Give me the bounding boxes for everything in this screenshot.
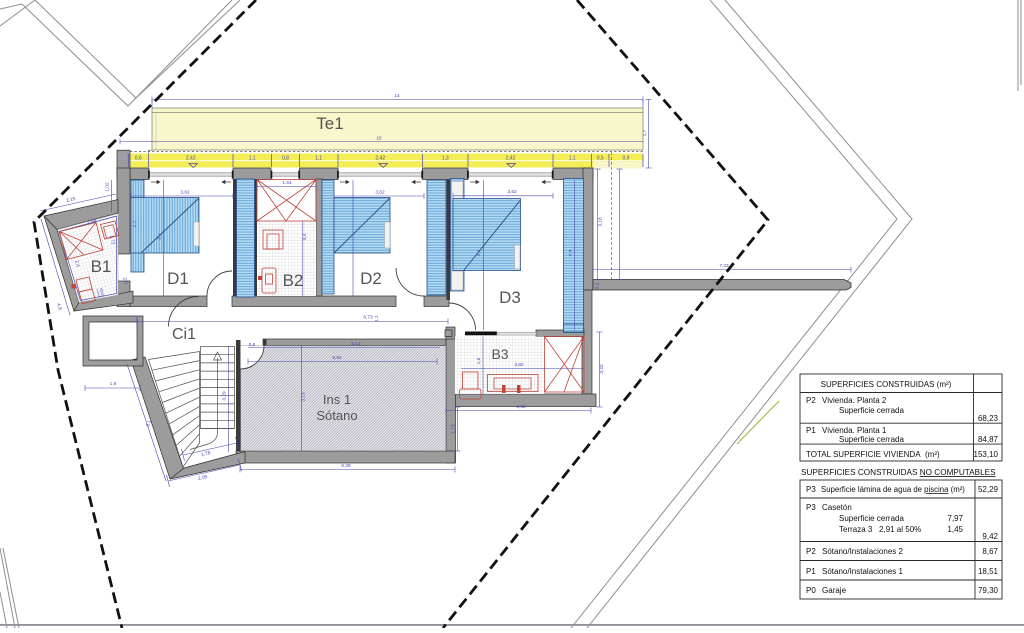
svg-text:5,92: 5,92 [332, 355, 342, 361]
svg-text:P2: P2 [806, 396, 816, 405]
svg-text:8,73: 8,73 [363, 315, 373, 321]
svg-text:14: 14 [394, 93, 400, 99]
svg-text:1,61: 1,61 [282, 180, 292, 186]
svg-text:B3: B3 [491, 346, 508, 362]
svg-text:2,7: 2,7 [132, 220, 138, 227]
svg-text:3,13: 3,13 [301, 392, 307, 402]
svg-text:2,42: 2,42 [375, 156, 385, 162]
svg-text:P1: P1 [806, 426, 816, 435]
svg-text:B2: B2 [283, 271, 304, 290]
svg-text:D3: D3 [499, 288, 521, 307]
svg-text:18,51: 18,51 [978, 567, 999, 576]
svg-text:1,6: 1,6 [476, 357, 482, 364]
svg-text:3,62: 3,62 [507, 189, 517, 195]
svg-text:1,45: 1,45 [947, 525, 963, 534]
svg-text:Superficie cerrada: Superficie cerrada [839, 435, 904, 444]
svg-text:Superficie cerrada: Superficie cerrada [839, 514, 904, 523]
svg-text:Sótano/Instalaciones 1: Sótano/Instalaciones 1 [822, 567, 903, 576]
svg-text:Terraza 3 2,91 al 50%: Terraza 3 2,91 al 50% [839, 525, 921, 534]
svg-text:1,1: 1,1 [374, 315, 380, 322]
svg-text:3,62: 3,62 [514, 362, 524, 368]
svg-text:Sótano: Sótano [316, 408, 357, 423]
svg-text:P1: P1 [806, 567, 816, 576]
svg-text:0,6: 0,6 [135, 156, 142, 162]
svg-text:Vivienda. Planta 1: Vivienda. Planta 1 [822, 426, 887, 435]
svg-text:2,42: 2,42 [186, 156, 196, 162]
svg-text:52,29: 52,29 [978, 485, 999, 494]
svg-text:5,12: 5,12 [351, 341, 361, 347]
svg-text:Casetón: Casetón [822, 503, 852, 512]
svg-text:3,22: 3,22 [599, 364, 605, 374]
svg-text:Ci1: Ci1 [172, 326, 196, 343]
svg-text:4,4: 4,4 [568, 249, 574, 256]
svg-text:0,9: 0,9 [623, 156, 630, 162]
svg-text:P3: P3 [806, 503, 816, 512]
svg-text:79,30: 79,30 [978, 586, 999, 595]
svg-text:Sótano/Instalaciones 2: Sótano/Instalaciones 2 [822, 547, 903, 556]
svg-text:153,10: 153,10 [974, 450, 999, 459]
svg-text:SUPERFICIES CONSTRUIDAS (m²): SUPERFICIES CONSTRUIDAS (m²) [821, 380, 952, 389]
svg-text:84,87: 84,87 [978, 435, 999, 444]
svg-text:P2: P2 [806, 547, 816, 556]
svg-text:1,02: 1,02 [105, 182, 111, 192]
svg-text:1,3: 1,3 [442, 156, 449, 162]
svg-text:7,97: 7,97 [947, 514, 963, 523]
svg-text:3,29: 3,29 [222, 391, 228, 401]
svg-text:TOTAL SUPERFICIE VIVIENDA (m²: TOTAL SUPERFICIE VIVIENDA (m²) [806, 450, 940, 459]
svg-text:15: 15 [376, 136, 382, 141]
svg-text:Vivienda. Planta 2: Vivienda. Planta 2 [822, 396, 887, 405]
svg-text:Garaje: Garaje [822, 586, 847, 595]
svg-text:0,6: 0,6 [249, 342, 256, 348]
svg-text:9,42: 9,42 [982, 532, 998, 541]
svg-text:1,73: 1,73 [451, 424, 457, 434]
svg-text:68,23: 68,23 [978, 414, 999, 423]
svg-text:1,7: 1,7 [642, 129, 648, 136]
svg-text:3,4: 3,4 [302, 233, 308, 240]
svg-text:6,28: 6,28 [341, 463, 351, 469]
svg-text:P3: P3 [806, 485, 816, 494]
svg-text:3,62: 3,62 [375, 190, 385, 196]
svg-text:8,67: 8,67 [982, 547, 998, 556]
svg-text:3,92: 3,92 [516, 404, 526, 410]
svg-text:P0: P0 [806, 586, 816, 595]
svg-text:1,1: 1,1 [315, 156, 322, 162]
svg-text:D1: D1 [167, 269, 189, 288]
svg-text:2,42: 2,42 [506, 156, 516, 162]
svg-text:Superficie lámina de agua de p: Superficie lámina de agua de piscina (m²… [821, 485, 965, 494]
svg-text:B1: B1 [91, 257, 112, 276]
svg-text:0,8: 0,8 [282, 156, 289, 162]
svg-text:1,1: 1,1 [569, 156, 576, 162]
svg-text:1,6: 1,6 [110, 381, 117, 387]
svg-text:1,1: 1,1 [249, 156, 256, 162]
svg-text:D2: D2 [360, 269, 382, 288]
svg-text:7,33: 7,33 [719, 263, 729, 269]
svg-text:3,62: 3,62 [180, 190, 190, 196]
svg-text:Ins 1: Ins 1 [323, 392, 351, 407]
svg-text:0,5: 0,5 [597, 156, 604, 162]
svg-text:Te1: Te1 [316, 114, 343, 133]
svg-text:SUPERFICIES CONSTRUIDAS NO COM: SUPERFICIES CONSTRUIDAS NO COMPUTABLES [801, 468, 996, 477]
svg-text:4,4: 4,4 [476, 249, 482, 256]
svg-text:Superficie cerrada: Superficie cerrada [839, 406, 904, 415]
svg-text:0,2: 0,2 [595, 282, 601, 289]
svg-text:0,3: 0,3 [119, 156, 126, 162]
svg-text:3,18: 3,18 [598, 217, 604, 227]
